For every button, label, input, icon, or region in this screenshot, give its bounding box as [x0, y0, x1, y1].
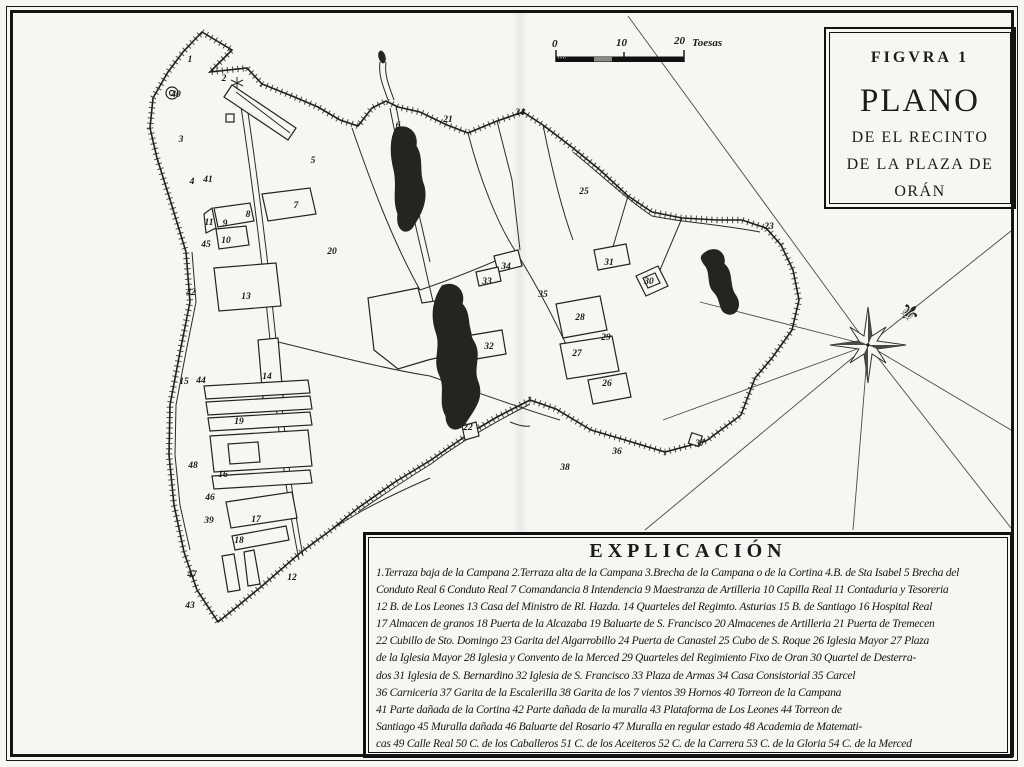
map-number-label: 23	[764, 222, 774, 232]
map-number-label: 24	[515, 108, 525, 118]
legend-text: 1.Terraza baja de la Campana 2.Terraza a…	[369, 564, 1007, 752]
map-number-label: 15	[179, 377, 189, 387]
map-number-label: 3	[179, 135, 184, 145]
legend-line: 41 Parte dañada de la Cortina 42 Parte d…	[376, 701, 1000, 718]
map-number-label: 32	[484, 342, 494, 352]
legend-line: de la Iglesia Mayor 28 Iglesia y Convent…	[376, 649, 1000, 666]
map-number-label: 27	[572, 349, 582, 359]
figure-label: FIGVRA 1	[871, 49, 969, 67]
legend-line: dos 31 Iglesia de S. Bernardino 32 Igles…	[376, 667, 1000, 684]
map-number-label: 20	[327, 247, 337, 257]
map-number-label: 39	[204, 516, 214, 526]
map-number-label: 43	[185, 601, 195, 611]
map-number-label: 10	[221, 236, 231, 246]
legend-line: cas 49 Calle Real 50 C. de los Caballero…	[376, 735, 1000, 752]
map-number-label: 19	[234, 417, 244, 427]
legend-line: 17 Almacen de granos 18 Puerta de la Alc…	[376, 615, 1000, 632]
map-number-label: 38	[560, 463, 570, 473]
map-number-label: 13	[241, 292, 251, 302]
scale-unit-label: Toesas	[692, 37, 722, 49]
map-number-label: 35	[538, 290, 548, 300]
map-number-label: 40	[171, 90, 181, 100]
ravine-vegetation	[391, 127, 738, 429]
title-box: FIGVRA 1 PLANO DE EL RECINTO DE LA PLAZA…	[824, 27, 1016, 209]
map-number-label: 28	[575, 313, 585, 323]
legend-line: 36 Carniceria 37 Garita de la Escalerill…	[376, 684, 1000, 701]
map-number-label: 16	[218, 470, 228, 480]
map-subtitle-2: DE LA PLAZA DE	[847, 156, 994, 174]
legend-box-inner: EXPLICACIÓN 1.Terraza baja de la Campana…	[368, 537, 1008, 753]
map-number-label: 25	[579, 187, 589, 197]
map-number-label: 44	[196, 376, 206, 386]
map-number-label: 4	[190, 177, 195, 187]
scale-tick-0: 0	[552, 38, 558, 50]
map-number-label: 26	[602, 379, 612, 389]
legend-line: 12 B. de Los Leones 13 Casa del Ministro…	[376, 598, 1000, 615]
legend-line: 1.Terraza baja de la Campana 2.Terraza a…	[376, 564, 1000, 581]
map-number-label: 36	[612, 447, 622, 457]
map-number-label: 33	[482, 277, 492, 287]
map-number-label: 6	[396, 121, 401, 131]
map-number-label: 7	[294, 201, 299, 211]
map-number-label: 34	[501, 262, 511, 272]
map-number-label: 2	[222, 74, 227, 84]
legend-line: Conduto Real 6 Conduto Real 7 Comandanci…	[376, 581, 1000, 598]
conduit	[378, 50, 394, 100]
scale-tick-20: 20	[674, 35, 685, 47]
map-subtitle-1: DE EL RECINTO	[852, 129, 989, 147]
title-box-inner: FIGVRA 1 PLANO DE EL RECINTO DE LA PLAZA…	[829, 32, 1011, 204]
legend-line: Santiago 45 Muralla dañada 46 Baluarte d…	[376, 718, 1000, 735]
map-number-label: 17	[251, 515, 261, 525]
map-number-label: 8	[246, 210, 251, 220]
map-number-label: 46	[205, 493, 215, 503]
map-number-label: 48	[188, 461, 198, 471]
map-number-label: 31	[604, 258, 614, 268]
map-subtitle-3: ORÁN	[894, 183, 945, 201]
map-number-label: 9	[223, 219, 228, 229]
map-number-label: 12	[287, 573, 297, 583]
map-number-label: 45	[201, 240, 211, 250]
map-number-label: 21	[443, 115, 453, 125]
map-number-label: 22	[463, 423, 473, 433]
buildings	[166, 85, 702, 592]
map-number-label: 47	[187, 570, 197, 580]
legend-box: EXPLICACIÓN 1.Terraza baja de la Campana…	[363, 532, 1013, 758]
map-sheet: 0 10 20 Toesas ⚜ FIGVRA 1 PLANO DE EL RE…	[0, 0, 1024, 767]
map-number-label: 29	[601, 333, 611, 343]
scale-bar	[556, 50, 684, 62]
legend-line: 22 Cubillo de Sto. Domingo 23 Garita del…	[376, 632, 1000, 649]
legend-title: EXPLICACIÓN	[369, 540, 1007, 564]
map-number-label: 30	[644, 277, 654, 287]
map-number-label: 37	[695, 439, 705, 449]
map-number-label: 14	[262, 372, 272, 382]
map-number-label: 11	[205, 218, 214, 228]
map-number-label: 18	[234, 536, 244, 546]
map-number-label: 1	[188, 55, 193, 65]
map-number-label: 5	[311, 156, 316, 166]
scale-tick-10: 10	[616, 37, 627, 49]
map-number-label: 42	[186, 288, 196, 298]
map-title: PLANO	[860, 83, 980, 120]
map-number-label: 41	[203, 175, 213, 185]
